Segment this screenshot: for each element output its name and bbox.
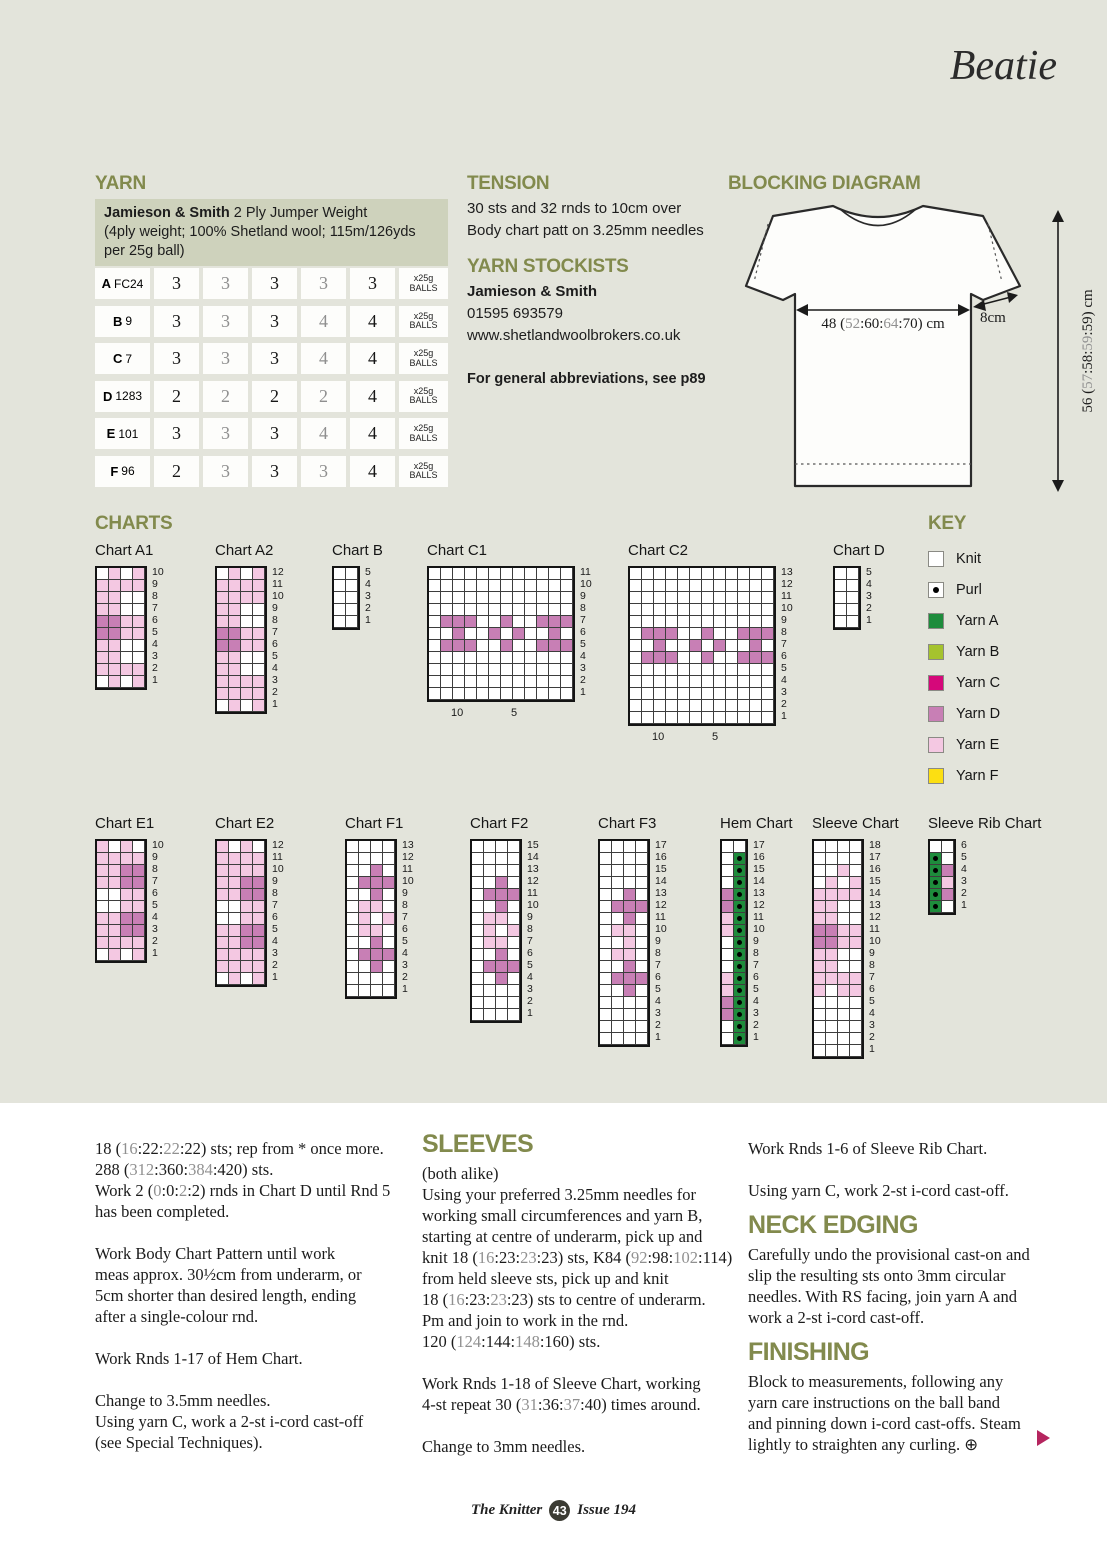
chart-cell [121,853,133,865]
text-segment: Work 2 ( [95,1181,153,1200]
chart-row-number: 8 [152,590,158,602]
chart-cell [722,1033,734,1045]
yarn-table-row: AFC2433333x25gBALLS [95,268,448,299]
chart-cell [253,700,265,712]
chart-row-number: 2 [272,686,278,698]
chart-row-number: 14 [869,887,881,899]
chart-cell [513,604,525,616]
chart-cell [726,688,738,700]
chart-row-number: 1 [580,686,586,698]
yarn-qty-cell: 3 [203,418,248,449]
chart-row-number: 5 [152,899,158,911]
key-label: Yarn B [956,644,999,660]
chart-title: Chart F2 [470,815,528,832]
chart-cell [678,676,690,688]
text-segment: : [1080,351,1096,355]
chart-cell [850,889,862,901]
chart-cell [217,913,229,925]
text-segment: 114 [703,1248,727,1267]
chart-cell [642,580,654,592]
chart-grid [470,839,522,1023]
text-segment: ) times around. [601,1395,700,1414]
yarn-unit-cell: x25gBALLS [399,306,448,337]
chart-row-number: 15 [869,875,881,887]
chart-title: Chart F3 [598,815,656,832]
chart-cell [666,664,678,676]
chart-cell [814,889,826,901]
chart-cell [666,604,678,616]
chart-cell [630,580,642,592]
chart-grid [812,839,864,1059]
chart-row-number: 3 [655,1007,661,1019]
stockist-phone: 01595 693579 [467,303,563,325]
chart-cell [714,688,726,700]
chart-cell [714,676,726,688]
text-line: working small circumferences and yarn B, [422,1205,744,1226]
chart-cell [501,676,513,688]
chart-cell [133,877,145,889]
text-line: 120 (124:144:148:160) sts. [422,1331,744,1352]
chart-cell [838,949,850,961]
chart-row-number: 12 [753,899,765,911]
chart-cell [121,865,133,877]
chart-row-number: 5 [152,626,158,638]
chart-cell [241,937,253,949]
chart-cell [762,664,774,676]
chart-cell [453,688,465,700]
chart-cell [666,676,678,688]
text-line: Work Rnds 1-18 of Sleeve Chart, working [422,1373,744,1394]
text-segment: 16 [121,1139,138,1158]
chart-cell [835,616,847,628]
chart-cell [814,997,826,1009]
chart-row-number: 6 [580,626,586,638]
chart-cell [477,640,489,652]
text-line: Using yarn C, work a 2-st i-cord cast-of… [95,1411,417,1432]
chart-row-number: 5 [753,983,759,995]
yarn-qty-cell: 3 [301,456,346,487]
chart-cell [441,604,453,616]
chart-cell [513,664,525,676]
chart-cell [472,889,484,901]
chart-cell [472,985,484,997]
chart-cell [97,925,109,937]
chart-cell [690,664,702,676]
text-line: starting at centre of underarm, pick up … [422,1226,744,1247]
chart-cell [472,913,484,925]
chart-cell [253,604,265,616]
chart-cell [654,676,666,688]
chart-cell [121,877,133,889]
key-swatch-C-icon [928,675,944,691]
text-segment: 23 [541,1248,558,1267]
chart-cell [847,604,859,616]
chart-cell [838,925,850,937]
chart-row-number: 6 [152,887,158,899]
chart-cell [441,676,453,688]
chart-row-number: 5 [580,638,586,650]
chart-cell [762,604,774,616]
chart-cell [537,580,549,592]
chart-cell [484,985,496,997]
chart-cell [702,712,714,724]
chart-cell [600,841,612,853]
chart-cell [472,949,484,961]
chart-row-number: 13 [655,887,667,899]
chart-cell [750,700,762,712]
chart-cell [654,604,666,616]
chart-cell [734,985,746,997]
chart-cell [97,628,109,640]
chart-cell [121,616,133,628]
chart-cell [690,700,702,712]
chart-cell [441,592,453,604]
chart-cell [508,1009,520,1021]
chart-cell [642,712,654,724]
chart-cell [726,700,738,712]
yarn-qty-cell: 4 [350,343,395,374]
chart-cell [97,949,109,961]
chart-title: Sleeve Rib Chart [928,815,1041,832]
chart-cell [97,604,109,616]
chart-row-number: 8 [655,947,661,959]
chart-cell [109,580,121,592]
yarn-shade-cell: C7 [95,343,150,374]
chart-cell [97,664,109,676]
chart-cell [722,901,734,913]
stockist-url[interactable]: www.shetlandwoolbrokers.co.uk [467,325,680,347]
chart-row-number: 1 [365,614,371,626]
chart-cell [702,640,714,652]
chart-cell [600,937,612,949]
chart-cell [359,949,371,961]
chart-row-number: 1 [781,710,787,722]
chart-cell [814,925,826,937]
chart-cell [850,913,862,925]
chart-row-number: 10 [152,566,164,578]
chart-cell [121,652,133,664]
chart-cell [762,676,774,688]
chart-cell [826,841,838,853]
instructions-column-2: SLEEVES(both alike)Using your preferred … [422,1130,744,1457]
sweater-schematic [728,198,1103,508]
chart-cell [484,865,496,877]
chart-cell [383,937,395,949]
chart-row-number: 4 [655,995,661,1007]
chart-cell [217,640,229,652]
chart-cell [359,973,371,985]
chart-cell [525,652,537,664]
text-line: 18 (16:22:22:22) sts; rep from * once mo… [95,1138,417,1159]
page-number-badge: 43 [549,1500,570,1521]
chart-row-number: 15 [753,863,765,875]
chart-row-number: 2 [580,674,586,686]
chart-cell [549,688,561,700]
chart-cell [133,913,145,925]
chart-cell [371,925,383,937]
section-subheading: NECK EDGING [748,1211,1070,1240]
chart-cell [826,985,838,997]
key-swatch-D-icon [928,706,944,722]
chart-cell [253,688,265,700]
chart-cell [489,616,501,628]
chart-cell [814,913,826,925]
chart-cell [513,616,525,628]
chart-row-number: 8 [781,626,787,638]
chart-cell [383,949,395,961]
text-segment: 5cm shorter than desired length, ending [95,1286,356,1305]
key-swatch-F-icon [928,768,944,784]
chart-row-number: 3 [272,947,278,959]
chart-cell [347,937,359,949]
chart-row-number: 3 [527,983,533,995]
chart-cell [714,604,726,616]
chart-cell [561,664,573,676]
chart-cell [501,592,513,604]
chart-cell [826,1021,838,1033]
text-segment: needles. With RS facing, join yarn A and [748,1287,1017,1306]
chart-cell [624,973,636,985]
chart-stitch-number: 5 [511,707,517,719]
chart-cell [826,937,838,949]
chart-cell [738,700,750,712]
chart-cell [850,1045,862,1057]
chart-cell [121,949,133,961]
chart-row-number: 10 [402,875,414,887]
yarn-shade-cell: E101 [95,418,150,449]
text-segment: ) sts, K84 ( [558,1248,631,1267]
chart-cell [465,688,477,700]
chart-cell [383,865,395,877]
chart-cell [489,592,501,604]
chart-cell [722,937,734,949]
chart-cell [477,676,489,688]
chart-cell [241,616,253,628]
text-segment: Using your preferred 3.25mm needles for [422,1185,696,1204]
chart-row-number: 5 [272,923,278,935]
chart-cell [359,841,371,853]
chart-cell [429,604,441,616]
chart-cell [501,664,513,676]
chart-cell [121,592,133,604]
chart-cell [750,664,762,676]
chart-cell [642,640,654,652]
chart-cell [383,841,395,853]
chart-cell [253,628,265,640]
chart-cell [109,865,121,877]
chart-row-number: 14 [753,875,765,887]
yarn-table-row: E10133344x25gBALLS [95,418,448,449]
chart-cell [346,616,358,628]
tension-heading: TENSION [467,173,549,195]
chart-row-number: 10 [272,863,284,875]
chart-cell [630,664,642,676]
text-line: Using your preferred 3.25mm needles for [422,1184,744,1205]
chart-cell [133,640,145,652]
chart-cell [734,853,746,865]
chart-cell [109,664,121,676]
chart-cell [678,652,690,664]
text-segment: 22 [184,1139,201,1158]
chart-cell [702,676,714,688]
chart-cell [726,568,738,580]
chart-cell [814,961,826,973]
text-segment: Pm and join to work in the rnd. [422,1311,628,1330]
chart-cell [702,580,714,592]
chart-row-number: 6 [961,839,967,851]
chart-cell [537,652,549,664]
chart-d: Chart D54321 [833,542,885,630]
chart-cell [630,676,642,688]
text-line: Change to 3.5mm needles. [95,1390,417,1411]
chart-cell [472,1009,484,1021]
chart-row-number: 8 [753,947,759,959]
chart-row-number: 15 [655,863,667,875]
chart-cell [702,688,714,700]
chart-cell [850,937,862,949]
chart-cell [537,640,549,652]
chart-cell [624,925,636,937]
chart-grid [95,839,147,963]
text-segment: knit 18 ( [422,1248,478,1267]
text-segment: 22 [142,1139,159,1158]
chart-row-number: 10 [655,923,667,935]
chart-cell [838,1009,850,1021]
chart-row-number: 11 [272,578,283,590]
chart-cell [472,937,484,949]
instructions-column-3: Work Rnds 1-6 of Sleeve Rib Chart.Using … [748,1138,1070,1455]
chart-title: Chart A1 [95,542,153,559]
yarn-qty-cell: 3 [203,343,248,374]
chart-cell [666,688,678,700]
key-swatch-purl-icon [928,582,944,598]
chart-grid [427,566,575,702]
chart-cell [726,652,738,664]
chart-cell [654,628,666,640]
chart-cell [734,961,746,973]
page-title: Beatie [950,42,1057,90]
chart-cell [241,901,253,913]
chart-cell [489,628,501,640]
chart-cell [229,640,241,652]
chart-cell [97,913,109,925]
chart-cell [838,1045,850,1057]
chart-cell [762,688,774,700]
chart-cell [714,616,726,628]
chart-cell [508,925,520,937]
chart-cell [484,973,496,985]
chart-cell [624,997,636,1009]
chart-row-number: 3 [869,1019,875,1031]
chart-cell [814,865,826,877]
text-segment: working small circumferences and yarn B, [422,1206,702,1225]
chart-cell [477,664,489,676]
chart-row-number: 1 [527,1007,533,1019]
chart-cell [826,997,838,1009]
chart-cell [513,688,525,700]
text-segment: 59 [1080,336,1096,351]
sleeve-depth-label: 8cm [980,310,1006,327]
chart-cell [229,877,241,889]
chart-b: Chart B54321 [332,542,383,630]
chart-cell [229,949,241,961]
chart-row-number: 11 [655,911,666,923]
chart-cell [229,973,241,985]
chart-cell [549,664,561,676]
chart-cell [642,616,654,628]
yarn-qty-cell: 3 [154,306,199,337]
yarn-qty-cell: 3 [203,268,248,299]
chart-cell [826,901,838,913]
chart-cell [702,628,714,640]
chart-cell [930,841,942,853]
chart-cell [371,865,383,877]
yarn-qty-cell: 4 [301,306,346,337]
text-line: and pinning down i-cord cast-offs. Steam [748,1413,1070,1434]
chart-cell [347,877,359,889]
chart-cell [714,568,726,580]
chart-row-number: 2 [753,1019,759,1031]
key-label: Purl [956,582,982,598]
text-segment: ) sts. [569,1332,600,1351]
chart-row-number: 3 [961,875,967,887]
chart-cell [850,841,862,853]
chart-cell [630,604,642,616]
chart-cell [762,580,774,592]
chart-cell [453,592,465,604]
chart-cell [496,925,508,937]
chart-row-number: 9 [869,947,875,959]
chart-cell [734,1009,746,1021]
chart-row-number: 12 [655,899,667,911]
chart-cell [714,652,726,664]
chart-cell [734,865,746,877]
chart-row-number: 5 [272,650,278,662]
chart-cell [496,841,508,853]
chart-cell [465,616,477,628]
chart-cell [217,901,229,913]
chart-row-number: 13 [753,887,765,899]
chart-row-number: 4 [869,1007,875,1019]
chart-row-number: 5 [869,995,875,1007]
chart-row-number: 11 [753,911,764,923]
chart-cell [501,640,513,652]
chart-cell [847,616,859,628]
chart-cell [133,841,145,853]
chart-cell [508,865,520,877]
chart-cell [722,973,734,985]
chart-cell [109,841,121,853]
chart-cell [561,628,573,640]
chart-row-number: 7 [152,875,158,887]
chart-cell [636,865,648,877]
chart-cell [217,616,229,628]
key-label: Knit [956,551,981,567]
chart-row-number: 5 [655,983,661,995]
chart-cell [549,676,561,688]
chart-cell [229,568,241,580]
chart-cell [359,985,371,997]
chart-row-number: 8 [869,959,875,971]
text-segment: Change to 3.5mm needles. [95,1391,271,1410]
chart-cell [217,925,229,937]
chart-cell [484,853,496,865]
yarn-qty-cell: 3 [350,268,395,299]
chart-cell [734,841,746,853]
chart-cell [942,841,954,853]
chart-cell [750,580,762,592]
key-item: Yarn B [928,636,1000,667]
